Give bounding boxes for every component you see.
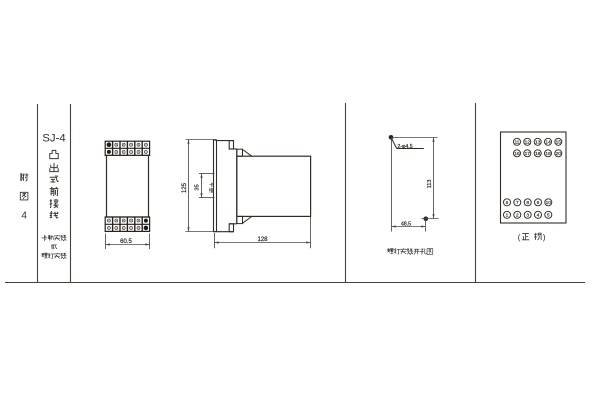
svg-text:3: 3 — [526, 213, 529, 219]
svg-text:125: 125 — [182, 182, 188, 193]
svg-text:14: 14 — [545, 140, 551, 146]
svg-text:10: 10 — [546, 200, 552, 206]
svg-text:12: 12 — [525, 140, 531, 146]
svg-text:1: 1 — [506, 213, 509, 219]
svg-text:20: 20 — [556, 151, 562, 157]
svg-text:9: 9 — [537, 200, 540, 206]
svg-text:18: 18 — [535, 151, 541, 157]
svg-text:16: 16 — [514, 151, 520, 157]
svg-text:8: 8 — [526, 200, 529, 206]
svg-text:15: 15 — [556, 140, 562, 146]
svg-text:17: 17 — [525, 151, 531, 157]
svg-text:4: 4 — [21, 211, 27, 222]
svg-text:2: 2 — [516, 213, 519, 219]
svg-text:2-φ4.5: 2-φ4.5 — [397, 144, 412, 150]
svg-text:48.5: 48.5 — [401, 221, 411, 227]
svg-text:4: 4 — [537, 213, 540, 219]
svg-text:7: 7 — [516, 200, 519, 206]
svg-text:19: 19 — [545, 151, 551, 157]
svg-text:6: 6 — [506, 200, 509, 206]
svg-text:113: 113 — [427, 180, 433, 189]
svg-text:): ) — [543, 232, 546, 242]
svg-text:13: 13 — [535, 140, 541, 146]
svg-text:5: 5 — [547, 213, 550, 219]
svg-text:128: 128 — [257, 237, 268, 243]
svg-text:11: 11 — [515, 140, 520, 146]
svg-text:SJ-4: SJ-4 — [42, 132, 65, 144]
svg-text:60.5: 60.5 — [120, 239, 132, 245]
svg-text:35: 35 — [195, 184, 201, 190]
svg-text:(: ( — [518, 232, 521, 242]
